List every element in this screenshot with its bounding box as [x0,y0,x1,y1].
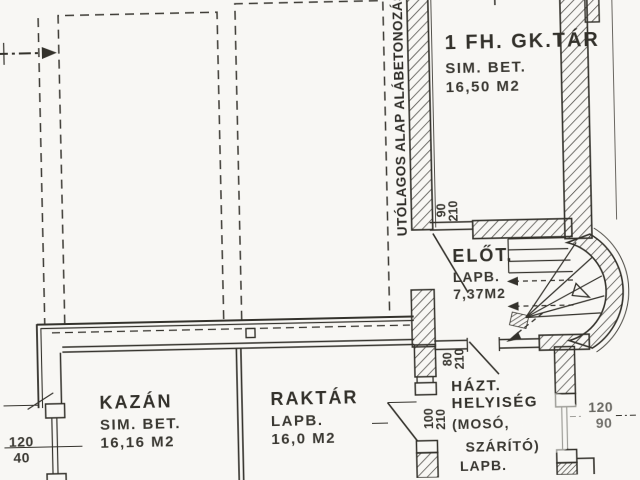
dim-door-100-height: 210 [434,409,448,430]
room-finish: LAPB. [453,269,514,284]
room-finish: SIM. BET. [100,416,181,433]
partition-line [236,349,239,480]
dashed-rect-b [235,1,390,320]
door-opening-line [388,402,417,403]
room-label-gktar: 1 FH. GK.TÁR SIM. BET. 16,50 M2 [445,30,601,95]
dim-right-window-parapet: 90 [587,415,621,430]
wall-outer-line-2 [41,328,43,408]
walk-line-arrowhead [506,332,521,342]
dashed-line-left [38,18,45,324]
window-jamb-top [46,404,65,418]
dashed-outline-lines [38,1,390,324]
room-finish: LAPB. [271,412,359,429]
underpinned-wall [407,0,436,230]
dim-door-80-height: 210 [452,348,466,369]
gktar-top-corner-hatch [585,0,600,22]
wall-line [499,347,539,348]
flue-marker [246,328,255,337]
room-name: 1 FH. GK.TÁR [445,30,601,53]
wall-inner-line [60,353,61,406]
window-glass-line [57,418,58,474]
room-area: 16,0 M2 [271,430,359,447]
room-note-line1: (MOSÓ, [452,415,539,431]
walk-line-arrowhead [507,302,518,311]
kazan-raktar-partition [236,349,243,480]
wall-hatch-lower [557,462,577,474]
wall-outer-line [37,324,39,408]
dim-left-window-width: 120 [6,434,36,449]
dashed-rect-a [58,12,224,323]
room-finish: LAPB. [460,457,540,473]
stair-winder [525,276,603,318]
room-name: KAZÁN [99,392,180,412]
room-area: 7,37M2 [453,286,514,301]
dim-door-90-height: 210 [446,200,460,221]
door-leaf-hazt-raktar [388,402,418,442]
walk-line [515,305,573,306]
section-arrowhead [42,47,57,59]
room-label-haztartasi: HÁZT. HELYISÉG (MOSÓ, SZÁRÍTÓ) LAPB. [451,377,540,473]
outer-face-line [612,0,617,220]
room-name-line1: HÁZT. [451,377,538,394]
wall-dashed-core [52,325,410,333]
floor-plan-sheet: 90 210 80 210 100 210 UTÓLAGOS ALAP ALÁB… [0,0,640,480]
door-jamb-top [415,383,436,395]
room-area: 16,16 M2 [100,434,181,451]
wall-outer-line-2 [41,320,414,328]
door-leaf-hazt-elot [469,341,499,375]
room-label-elot: ELŐT. LAPB. 7,37M2 [452,246,514,301]
wall-outer-line [37,316,414,324]
wall-junction-hatch [411,290,435,347]
wall-hatch-lower [417,452,439,477]
room-finish: SIM. BET. [445,58,600,76]
walk-line [515,280,573,281]
elot-top-wall-hatch [473,219,572,239]
corner-wall-line [577,458,594,474]
stair-start-block [509,312,528,328]
stair-tread [508,249,568,250]
wall-line [434,340,467,341]
stair-tread [509,260,571,261]
room-name: RAKTÁR [270,388,358,408]
wall-hatch-upper [414,345,436,377]
door-jamb-bottom [416,440,437,452]
room-label-kazan: KAZÁN SIM. BET. 16,16 M2 [99,392,181,451]
room-name-line2: HELYISÉG [451,394,538,411]
room-note-line2: SZÁRÍTÓ) [465,438,539,454]
room-name: ELŐT. [452,246,513,265]
dim-right-window-width: 120 [584,400,618,415]
main-cross-wall [36,290,435,356]
plan-canvas: 90 210 80 210 100 210 UTÓLAGOS ALAP ALÁB… [0,0,640,480]
room-label-raktar: RAKTÁR LAPB. 16,0 M2 [270,388,359,447]
dim-left-window-parapet: 40 [7,450,37,465]
bay-wall-hatch [567,233,624,348]
window-glass-line [52,418,53,474]
underpinned-wall-hatch [407,0,433,230]
window-jamb-bottom [47,474,66,480]
wall-hatch-upper [554,346,575,393]
stair-tread [509,271,573,272]
partition-line [241,349,244,480]
section-arrow-line [0,53,42,54]
stair-winder [526,313,601,318]
section-arrow [0,42,57,65]
lintel-line-2 [430,229,473,230]
